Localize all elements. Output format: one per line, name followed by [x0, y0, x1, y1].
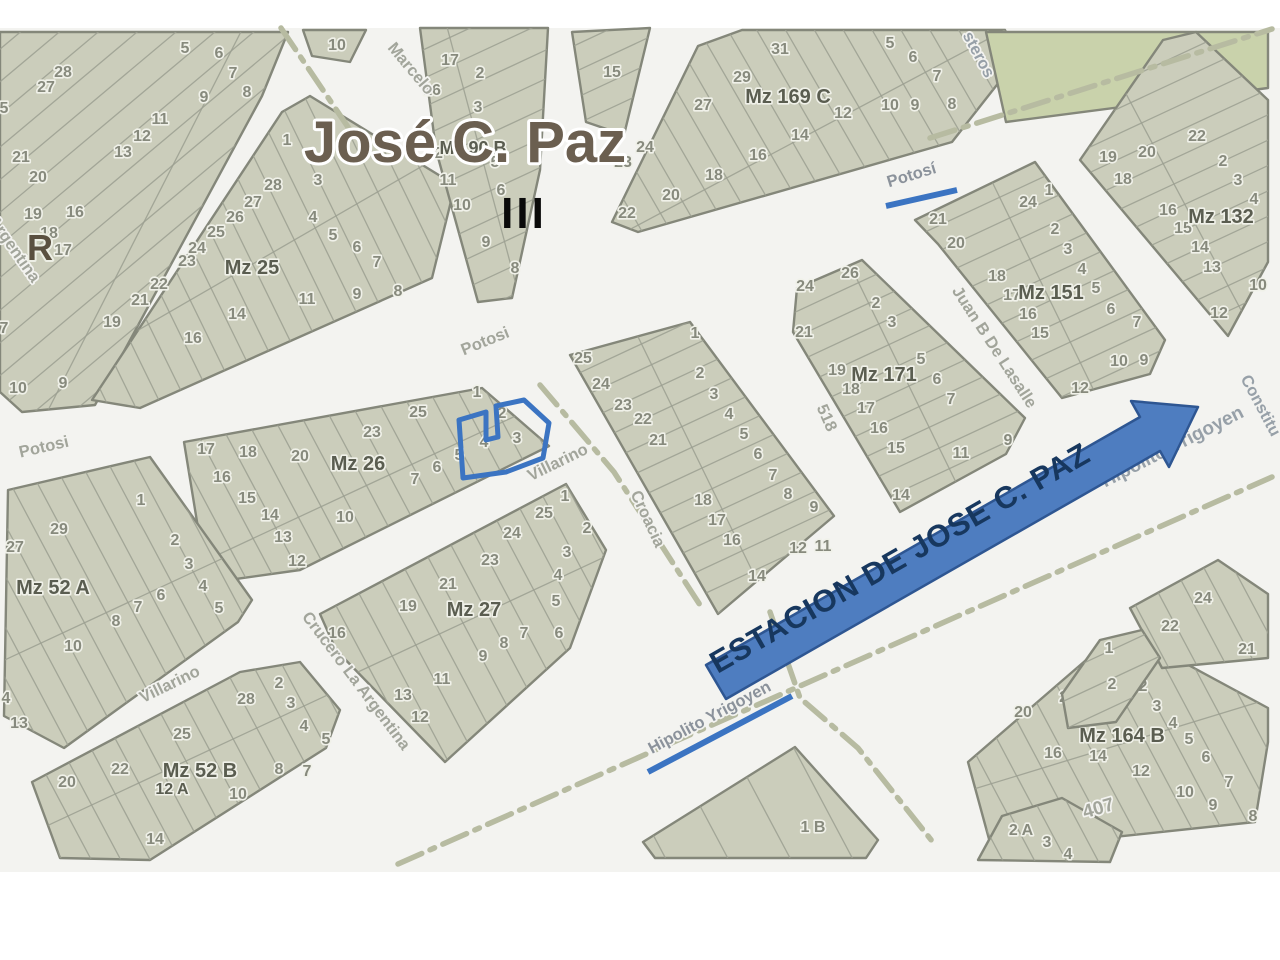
parcel-label: 10: [1249, 277, 1267, 294]
parcel-label: 15: [887, 440, 905, 457]
parcel-label: 6: [215, 45, 224, 62]
parcel-label: 10: [881, 97, 899, 114]
parcel-label: 12: [1210, 305, 1228, 322]
parcel-label: 18: [988, 268, 1006, 285]
parcel-label: 19: [1099, 149, 1117, 166]
parcel-label: 15: [603, 64, 621, 81]
parcel-label: 7: [769, 467, 778, 484]
parcel-label: 8: [112, 613, 121, 630]
parcel-label: 1: [1045, 182, 1054, 199]
parcel-label: 20: [291, 448, 309, 465]
parcel-label: 1: [1105, 640, 1114, 657]
block-label-mz132: Mz 132: [1188, 206, 1254, 228]
parcel-label: 8: [511, 260, 520, 277]
parcel-label: 4: [554, 567, 563, 584]
parcel-label: 2: [1219, 153, 1228, 170]
parcel-label: 8: [1249, 808, 1258, 825]
parcel-label: 14: [791, 127, 809, 144]
parcel-label: 1: [473, 384, 482, 401]
map-canvas: 2827567891112135212019161817710913456728…: [0, 0, 1280, 960]
parcel-label: 4: [1169, 715, 1178, 732]
parcel-label: 8: [275, 761, 284, 778]
parcel-label: 18: [239, 444, 257, 461]
parcel-label: 14: [228, 306, 246, 323]
parcel-label: 2: [1108, 676, 1117, 693]
parcel-label: 12: [789, 540, 807, 557]
block-label-mz52b: Mz 52 B: [163, 760, 237, 782]
parcel-label: 13: [394, 687, 412, 704]
parcel-label: 9: [1140, 352, 1149, 369]
parcel-label: 28: [237, 691, 255, 708]
parcel-label: 14: [748, 568, 766, 585]
parcel-label: 4: [199, 578, 208, 595]
parcel-label: 27: [6, 539, 24, 556]
parcel-label: 25: [207, 224, 225, 241]
block-sublabel-mz52b: 12 A: [155, 781, 189, 798]
landmark-r: R: [27, 227, 53, 268]
parcel-label: 5: [1185, 731, 1194, 748]
parcel-label: 9: [479, 648, 488, 665]
parcel-label: 9: [1209, 797, 1218, 814]
parcel-label: 17: [54, 242, 72, 259]
parcel-label: 8: [948, 96, 957, 113]
parcel-label: 14: [892, 487, 910, 504]
parcel-label: 16: [870, 420, 888, 437]
parcel-label: 19: [828, 362, 846, 379]
parcel-label: 25: [535, 505, 553, 522]
parcel-label: 21: [649, 432, 667, 449]
parcel-label: 2: [696, 365, 705, 382]
parcel-label: 8: [784, 486, 793, 503]
parcel-label: 20: [662, 187, 680, 204]
parcel-label: 10: [1176, 784, 1194, 801]
parcel-label: 6: [754, 446, 763, 463]
parcel-label: 24: [1194, 590, 1212, 607]
parcel-label: 12: [1071, 380, 1089, 397]
parcel-label: 27: [244, 194, 262, 211]
parcel-label: 31: [771, 41, 789, 58]
parcel-label: 1: [691, 325, 700, 342]
parcel-label: 9: [482, 234, 491, 251]
parcel-label: 5: [886, 35, 895, 52]
parcel-label: 20: [58, 774, 76, 791]
parcel-label: 5: [329, 227, 338, 244]
parcel-label: 18: [694, 492, 712, 509]
parcel-label: 11: [434, 671, 451, 688]
parcel-label: 7: [229, 65, 238, 82]
parcel-label: 25: [173, 726, 191, 743]
parcel-label: 20: [1138, 144, 1156, 161]
parcel-label: 7: [303, 763, 312, 780]
block-label-mz27: Mz 27: [447, 599, 501, 621]
parcel-label: 2: [872, 295, 881, 312]
parcel-label: 12: [288, 553, 306, 570]
parcel-label: 21: [795, 324, 813, 341]
parcel-label: 17: [197, 441, 215, 458]
parcel-label: 3: [287, 695, 296, 712]
parcel-label: 16: [184, 330, 202, 347]
parcel-label: 4: [2, 690, 11, 707]
parcel-label: 2 A: [1009, 822, 1034, 839]
parcel-label: 16: [749, 147, 767, 164]
parcel-label: 27: [37, 79, 55, 96]
parcel-label: 9: [810, 499, 819, 516]
parcel-label: 3: [1234, 172, 1243, 189]
parcel-label: 23: [178, 253, 196, 270]
parcel-label: 13: [274, 529, 292, 546]
parcel-label: 17: [441, 52, 459, 69]
parcel-label: 5: [917, 351, 926, 368]
parcel-label: 13: [1203, 259, 1221, 276]
parcel-label: 26: [841, 265, 859, 282]
parcel-label: 5: [181, 40, 190, 57]
parcel-label: 19: [24, 206, 42, 223]
parcel-label: 16: [1159, 202, 1177, 219]
parcel-label: 9: [59, 375, 68, 392]
parcel-label: 6: [1107, 301, 1116, 318]
block-label-mz52a: Mz 52 A: [16, 577, 90, 599]
parcel-label: 19: [399, 598, 417, 615]
parcel-label: 19: [103, 314, 121, 331]
parcel-label: 21: [12, 149, 30, 166]
parcel-label: 6: [933, 371, 942, 388]
parcel-label: 5: [552, 593, 561, 610]
parcel-label: 24: [1019, 194, 1037, 211]
parcel-label: 3: [710, 386, 719, 403]
parcel-label: 2: [583, 520, 592, 537]
parcel-label: 24: [503, 525, 521, 542]
parcel-label: 17: [857, 400, 875, 417]
parcel-label: 24: [796, 278, 814, 295]
parcel-label: 8: [243, 84, 252, 101]
parcel-label: 2: [171, 532, 180, 549]
parcel-label: 6: [353, 239, 362, 256]
parcel-label: 16: [1019, 306, 1037, 323]
parcel-label: 10: [9, 380, 27, 397]
parcel-label: 3: [1043, 834, 1052, 851]
parcel-label: 13: [10, 715, 28, 732]
parcel-label: 16: [723, 532, 741, 549]
cadastral-map: 2827567891112135212019161817710913456728…: [0, 0, 1280, 960]
parcel-label: 9: [1004, 432, 1013, 449]
parcel-label: 15: [1031, 325, 1049, 342]
parcel-label: 7: [520, 625, 529, 642]
block-label-mz169c: Mz 169 C: [745, 86, 831, 108]
parcel-label: 10: [1110, 353, 1128, 370]
parcel-label: 5: [0, 100, 9, 117]
parcel-label: 20: [29, 169, 47, 186]
parcel-label: 9: [353, 286, 362, 303]
parcel-label: 2: [476, 65, 485, 82]
parcel-label: 7: [134, 599, 143, 616]
parcel-label: 29: [733, 69, 751, 86]
parcel-label: 1: [137, 492, 146, 509]
parcel-label: 7: [0, 320, 9, 337]
block-label-mz26: Mz 26: [331, 453, 385, 475]
parcel-label: 10: [229, 786, 247, 803]
parcel-label: 8: [394, 283, 403, 300]
parcel-label: 1: [283, 132, 292, 149]
parcel-label: 9: [911, 97, 920, 114]
parcel-label: 23: [363, 424, 381, 441]
block-label-mz164b: Mz 164 B: [1079, 725, 1165, 747]
parcel-label: 22: [1188, 128, 1206, 145]
parcel-label: 4: [1064, 846, 1073, 863]
parcel-label: 14: [1191, 239, 1209, 256]
parcel-label: 21: [929, 211, 947, 228]
parcel-label: 27: [694, 97, 712, 114]
parcel-label: 12: [133, 128, 151, 145]
parcel-label: 1 B: [801, 819, 826, 836]
parcel-label: 7: [373, 254, 382, 271]
parcel-label: 28: [264, 177, 282, 194]
parcel-label: 20: [1014, 704, 1032, 721]
parcel-label: 15: [238, 490, 256, 507]
parcel-label: 14: [1089, 748, 1107, 765]
parcel-label: 5: [740, 426, 749, 443]
parcel-label: 23: [614, 397, 632, 414]
parcel-label: 17: [708, 512, 726, 529]
parcel-label: 26: [226, 209, 244, 226]
parcel-label: 25: [574, 350, 592, 367]
parcel-label: 11: [152, 111, 169, 128]
parcel-label: 29: [50, 521, 68, 538]
parcel-label: 6: [555, 625, 564, 642]
parcel-label: 1: [561, 488, 570, 505]
parcel-label: 11: [299, 291, 316, 308]
parcel-label: 18: [1114, 171, 1132, 188]
parcel-label: 3: [563, 544, 572, 561]
parcel-label: 22: [111, 761, 129, 778]
parcel-label: 18: [705, 167, 723, 184]
parcel-label: 6: [157, 587, 166, 604]
parcel-label: 7: [1133, 314, 1142, 331]
parcel-label: 6: [1202, 749, 1211, 766]
parcel-label: 21: [439, 576, 457, 593]
parcel-label: 16: [1044, 745, 1062, 762]
parcel-label: 4: [725, 406, 734, 423]
block-label-mz171: Mz 171: [851, 364, 917, 386]
parcel-label: 22: [150, 276, 168, 293]
parcel-label: 11: [953, 445, 970, 462]
parcel-label: 3: [185, 556, 194, 573]
parcel-label: 3: [888, 314, 897, 331]
parcel-label: 6: [433, 459, 442, 476]
parcel-label: 5: [1092, 280, 1101, 297]
map-title: José C. Paz: [304, 110, 626, 175]
parcel-label: 10: [336, 509, 354, 526]
parcel-label: 14: [146, 831, 164, 848]
parcel-label: 12: [1132, 763, 1150, 780]
parcel-label: 22: [634, 411, 652, 428]
block-label-mz151: Mz 151: [1018, 282, 1084, 304]
parcel-label: 24: [636, 139, 654, 156]
parcel-label: 4: [1078, 261, 1087, 278]
parcel-label: 5: [322, 731, 331, 748]
parcel-label: 7: [1225, 774, 1234, 791]
parcel-label: 24: [592, 376, 610, 393]
parcel-label: 5: [215, 600, 224, 617]
parcel-label: 8: [500, 635, 509, 652]
parcel-label: 12: [834, 105, 852, 122]
parcel-label: 21: [131, 292, 149, 309]
parcel-label: 7: [947, 391, 956, 408]
parcel-label: 3: [1153, 698, 1162, 715]
parcel-label: 3: [1064, 241, 1073, 258]
parcel-label: 2: [275, 675, 284, 692]
block-label-mz25: Mz 25: [225, 257, 279, 279]
parcel-label: 13: [114, 144, 132, 161]
parcel-label: 16: [66, 204, 84, 221]
parcel-label: 4: [300, 718, 309, 735]
parcel-label: 28: [54, 64, 72, 81]
parcel-label: 20: [947, 235, 965, 252]
parcel-label: 21: [1238, 641, 1256, 658]
parcel-label: 7: [933, 68, 942, 85]
parcel-label: 22: [1161, 618, 1179, 635]
parcel-label: 14: [261, 507, 279, 524]
parcel-label: 6: [909, 49, 918, 66]
parcel-label: 10: [328, 37, 346, 54]
parcel-label: 3: [513, 430, 522, 447]
parcel-label: 22: [618, 205, 636, 222]
parcel-label: 2: [1051, 221, 1060, 238]
parcel-label: 7: [411, 471, 420, 488]
map-subtitle: III: [501, 189, 547, 238]
parcel-label: 11: [815, 538, 832, 555]
parcel-label: 25: [409, 404, 427, 421]
parcel-label: 4: [309, 209, 318, 226]
parcel-label: 10: [453, 197, 471, 214]
parcel-label: 10: [64, 638, 82, 655]
parcel-label: 16: [213, 469, 231, 486]
parcel-label: 9: [200, 89, 209, 106]
parcel-label: 23: [481, 552, 499, 569]
parcel-label: 12: [411, 709, 429, 726]
